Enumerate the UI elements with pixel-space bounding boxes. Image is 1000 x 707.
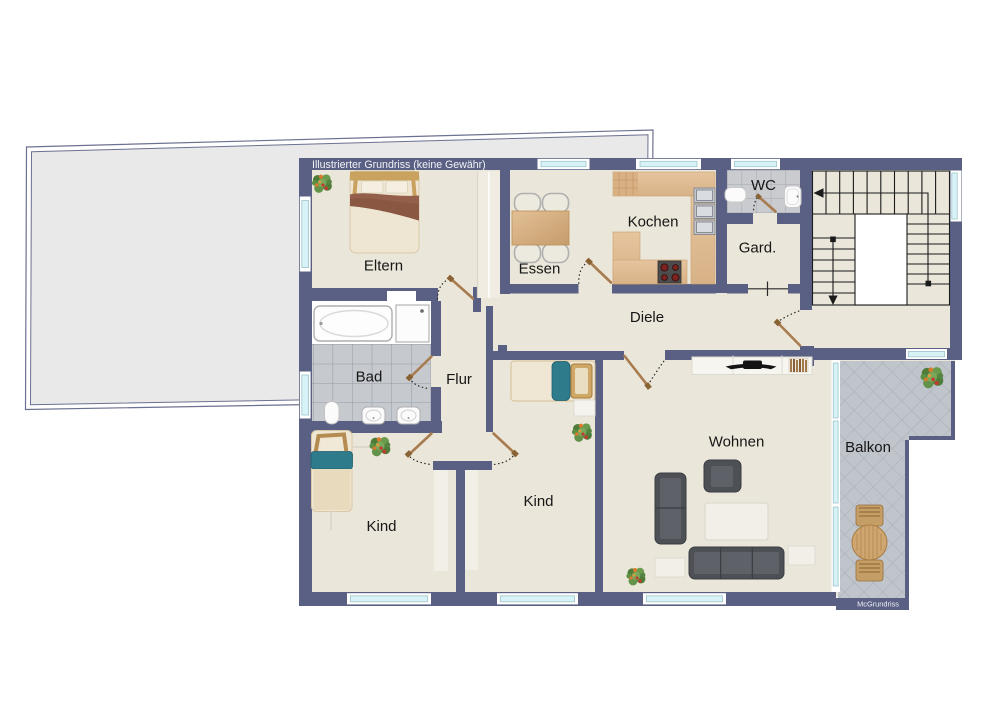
svg-text:Kochen: Kochen	[628, 214, 679, 231]
svg-text:Essen: Essen	[519, 261, 561, 278]
svg-text:Flur: Flur	[446, 371, 472, 388]
svg-text:Kind: Kind	[366, 518, 396, 535]
svg-text:Eltern: Eltern	[364, 258, 403, 275]
svg-text:Diele: Diele	[630, 309, 664, 326]
svg-text:Illustrierter Grundriss (keine: Illustrierter Grundriss (keine Gewähr)	[312, 159, 486, 171]
svg-text:Wohnen: Wohnen	[709, 434, 765, 451]
svg-text:WC: WC	[751, 177, 776, 194]
svg-text:Gard.: Gard.	[739, 240, 777, 257]
svg-text:McGrundriss: McGrundriss	[857, 600, 899, 609]
svg-text:Balkon: Balkon	[845, 439, 891, 456]
svg-text:Kind: Kind	[523, 493, 553, 510]
svg-text:Bad: Bad	[356, 369, 383, 386]
